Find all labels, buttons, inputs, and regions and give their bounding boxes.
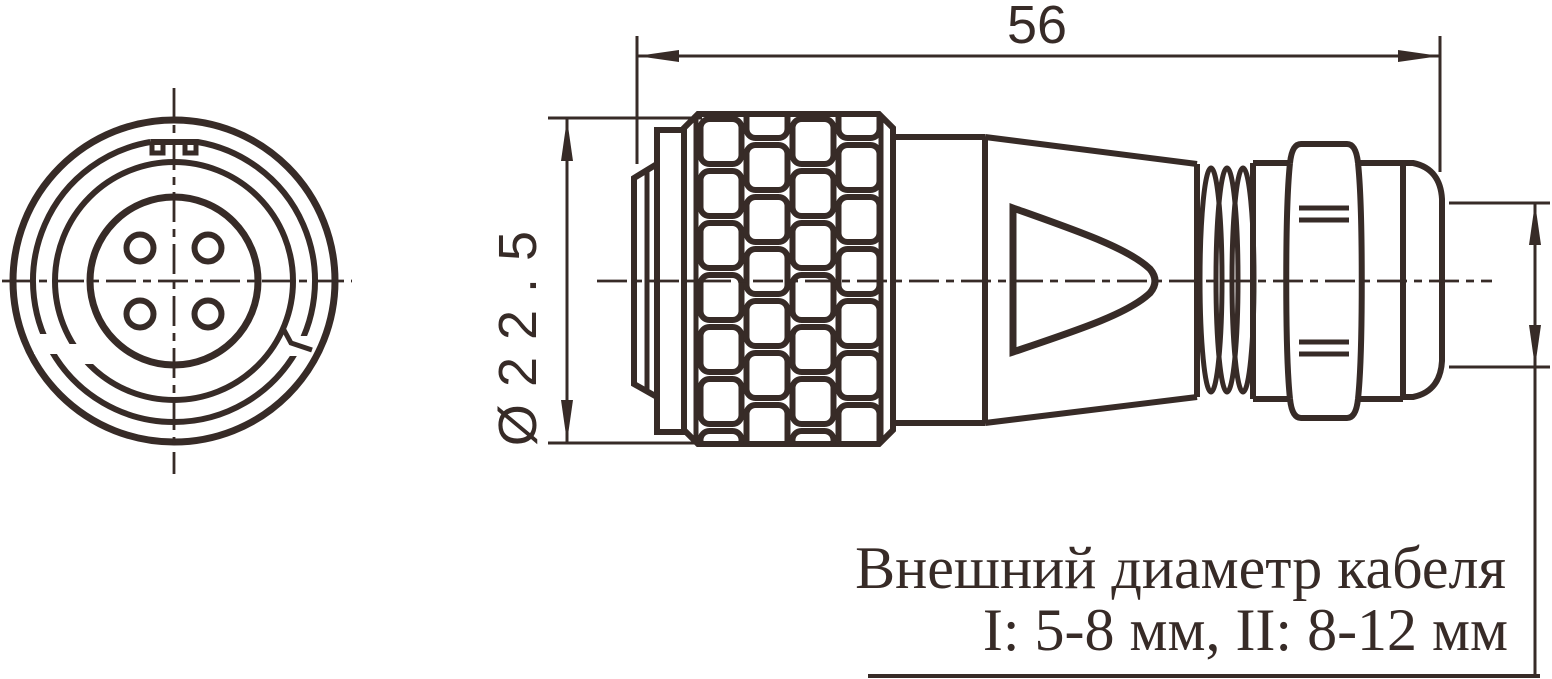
pin-hole [195,301,222,328]
arrowhead-down [1529,325,1541,367]
cable-note-line2: I: 5-8 мм, II: 8-12 мм [983,597,1508,663]
arrowhead-up [561,119,573,161]
cable-note-line1: Внешний диаметр кабеля [855,535,1506,601]
hex-chamfer-lines-bottom [1299,342,1349,354]
arrowhead-right [1398,50,1440,62]
connector-drawing: 56 Ø22.5 Внешний диаметр кабеля I: 5-8 м… [0,0,1552,679]
arrowhead-up [1529,203,1541,245]
arrowhead-left [637,50,679,62]
pin-hole [127,235,154,262]
arrowhead-down [561,400,573,442]
hex-right-corner [1358,163,1362,399]
dimension-diameter-label: Ø22.5 [488,214,548,446]
ring-gap [34,334,60,354]
pin-hole [195,235,222,262]
hex-bottom-flat [1290,399,1358,418]
pin-hole [127,301,154,328]
hex-chamfer-lines-top [1299,208,1349,220]
taper-bottom-edge [985,397,1197,423]
side-view [597,93,1492,476]
hex-top-flat [1290,144,1358,163]
dimension-56-label: 56 [1007,0,1067,55]
technical-drawing-canvas: 56 Ø22.5 Внешний диаметр кабеля I: 5-8 м… [0,0,1552,679]
ring-gap [66,344,94,364]
front-view-centerlines [2,88,352,474]
taper-top-edge [985,137,1197,164]
